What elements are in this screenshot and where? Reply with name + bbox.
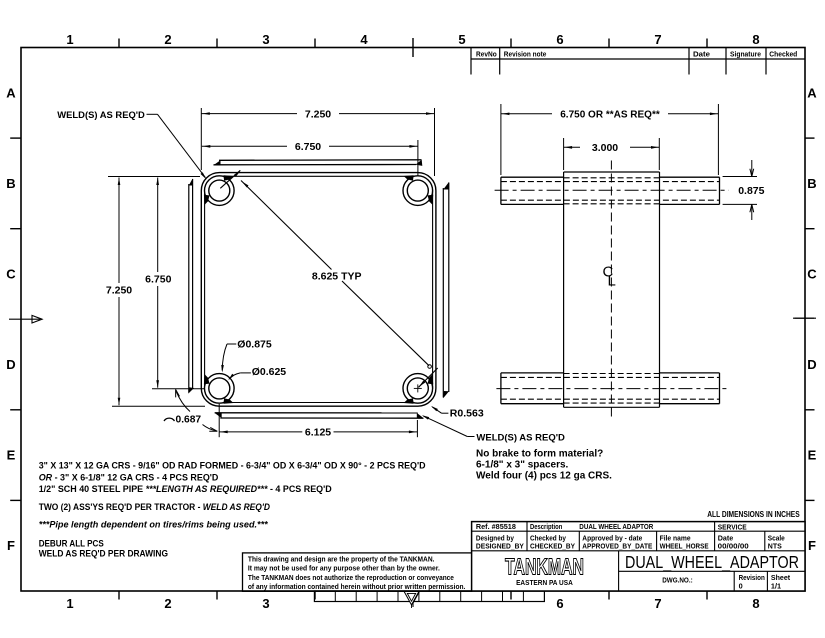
svg-text:Description: Description <box>530 522 562 531</box>
svg-text:Revision note: Revision note <box>504 52 547 59</box>
svg-text:2: 2 <box>164 596 171 611</box>
svg-text:Date: Date <box>693 52 710 59</box>
svg-text:OR - 3" X 6-1/8" 12 GA CRS - 4: OR - 3" X 6-1/8" 12 GA CRS - 4 PCS REQ'D <box>39 472 219 482</box>
svg-text:This drawing and design are th: This drawing and design are the property… <box>248 555 435 564</box>
svg-text:C: C <box>6 267 16 282</box>
svg-text:CHECKED_BY: CHECKED_BY <box>530 541 575 550</box>
svg-text:TWO (2) ASS'YS REQ'D PER TRACT: TWO (2) ASS'YS REQ'D PER TRACTOR - WELD … <box>39 501 271 512</box>
svg-text:5: 5 <box>458 32 465 47</box>
svg-text:F: F <box>808 538 816 553</box>
svg-text:0.875: 0.875 <box>738 185 764 197</box>
svg-text:No brake to form material?: No brake to form material? <box>476 449 603 460</box>
svg-text:7.250: 7.250 <box>305 109 331 121</box>
svg-text:00/00/00: 00/00/00 <box>718 541 749 550</box>
svg-text:DESIGNED_BY: DESIGNED_BY <box>476 541 524 550</box>
svg-text:D: D <box>807 357 816 372</box>
svg-text:***Pipe length dependent on ti: ***Pipe length dependent on tires/rims b… <box>39 519 268 529</box>
svg-text:3.000: 3.000 <box>592 142 618 154</box>
svg-text:EASTERN PA USA: EASTERN PA USA <box>516 578 573 587</box>
svg-text:8: 8 <box>752 32 759 47</box>
svg-text:8: 8 <box>752 596 759 611</box>
svg-text:The TANKMAN does not authorize: The TANKMAN does not authorize the repro… <box>248 573 454 582</box>
svg-text:F: F <box>7 538 15 553</box>
svg-text:Ø0.625: Ø0.625 <box>252 366 287 378</box>
svg-text:L: L <box>608 273 616 290</box>
svg-text:DUAL_WHEEL_ADAPTOR: DUAL_WHEEL_ADAPTOR <box>625 552 799 573</box>
svg-text:1: 1 <box>66 596 73 611</box>
svg-text:Weld four (4) pcs 12 ga CRS.: Weld four (4) pcs 12 ga CRS. <box>476 471 612 482</box>
svg-text:E: E <box>7 448 16 463</box>
svg-text:Ref. #85518: Ref. #85518 <box>476 522 516 531</box>
svg-text:8.625 TYP: 8.625 TYP <box>312 270 362 282</box>
svg-text:6.750 OR **AS REQ**: 6.750 OR **AS REQ** <box>560 110 660 121</box>
svg-text:6.750: 6.750 <box>145 274 171 286</box>
svg-text:6-1/8" x 3" spacers.: 6-1/8" x 3" spacers. <box>476 460 569 471</box>
svg-text:Ø0.875: Ø0.875 <box>237 338 272 350</box>
svg-text:7: 7 <box>654 32 661 47</box>
svg-text:R0.563: R0.563 <box>450 408 484 420</box>
svg-text:2: 2 <box>164 32 171 47</box>
svg-text:7.250: 7.250 <box>106 285 132 297</box>
svg-text:6.750: 6.750 <box>295 141 321 153</box>
svg-text:Checked: Checked <box>769 52 797 59</box>
svg-text:1/1: 1/1 <box>771 581 781 590</box>
svg-text:B: B <box>6 176 15 191</box>
svg-text:4: 4 <box>360 32 368 47</box>
svg-text:6.125: 6.125 <box>305 427 331 439</box>
svg-text:WELD(S) AS REQ'D: WELD(S) AS REQ'D <box>57 110 145 121</box>
svg-text:3: 3 <box>262 596 269 611</box>
svg-text:C: C <box>807 267 817 282</box>
svg-text:APPROVED_BY_DATE: APPROVED_BY_DATE <box>582 541 652 550</box>
svg-text:WHEEL_HORSE: WHEEL_HORSE <box>660 541 709 550</box>
svg-text:A: A <box>6 85 16 100</box>
svg-text:6: 6 <box>556 32 563 47</box>
svg-text:0: 0 <box>739 581 743 590</box>
svg-text:of any information contained h: of any information contained herein with… <box>248 582 466 591</box>
svg-text:3: 3 <box>262 32 269 47</box>
svg-text:7: 7 <box>654 596 661 611</box>
svg-text:A: A <box>807 85 817 100</box>
svg-text:WELD(S) AS REQ'D: WELD(S) AS REQ'D <box>476 432 565 443</box>
svg-text:SERVICE: SERVICE <box>718 522 747 531</box>
svg-text:WELD AS REQ'D PER DRAWING: WELD AS REQ'D PER DRAWING <box>39 548 168 559</box>
svg-text:DWG.NO.:: DWG.NO.: <box>662 575 693 584</box>
svg-text:DUAL WHEEL ADAPTOR: DUAL WHEEL ADAPTOR <box>579 522 654 531</box>
svg-text:E: E <box>808 448 817 463</box>
svg-text:1: 1 <box>66 32 73 47</box>
svg-text:0.687: 0.687 <box>176 413 202 425</box>
svg-text:RevNo: RevNo <box>476 52 497 59</box>
svg-text:NTS: NTS <box>768 541 782 550</box>
svg-text:DEBUR ALL PCS: DEBUR ALL PCS <box>39 538 104 549</box>
svg-text:It may not be used for any pur: It may not be used for any purpose other… <box>248 564 440 573</box>
svg-text:TANKMAN: TANKMAN <box>505 554 584 580</box>
svg-text:D: D <box>6 357 15 372</box>
svg-text:Signature: Signature <box>730 52 761 59</box>
svg-text:3" X 13" X 12 GA CRS - 9/16" O: 3" X 13" X 12 GA CRS - 9/16" OD RAD FORM… <box>39 460 426 470</box>
svg-text:6: 6 <box>556 596 563 611</box>
svg-text:ALL DIMENSIONS IN INCHES: ALL DIMENSIONS IN INCHES <box>707 510 800 519</box>
svg-text:B: B <box>807 176 816 191</box>
svg-text:1/2" SCH 40 STEEL PIPE ***LEN: 1/2" SCH 40 STEEL PIPE ***LENGTH AS REQU… <box>39 484 332 494</box>
